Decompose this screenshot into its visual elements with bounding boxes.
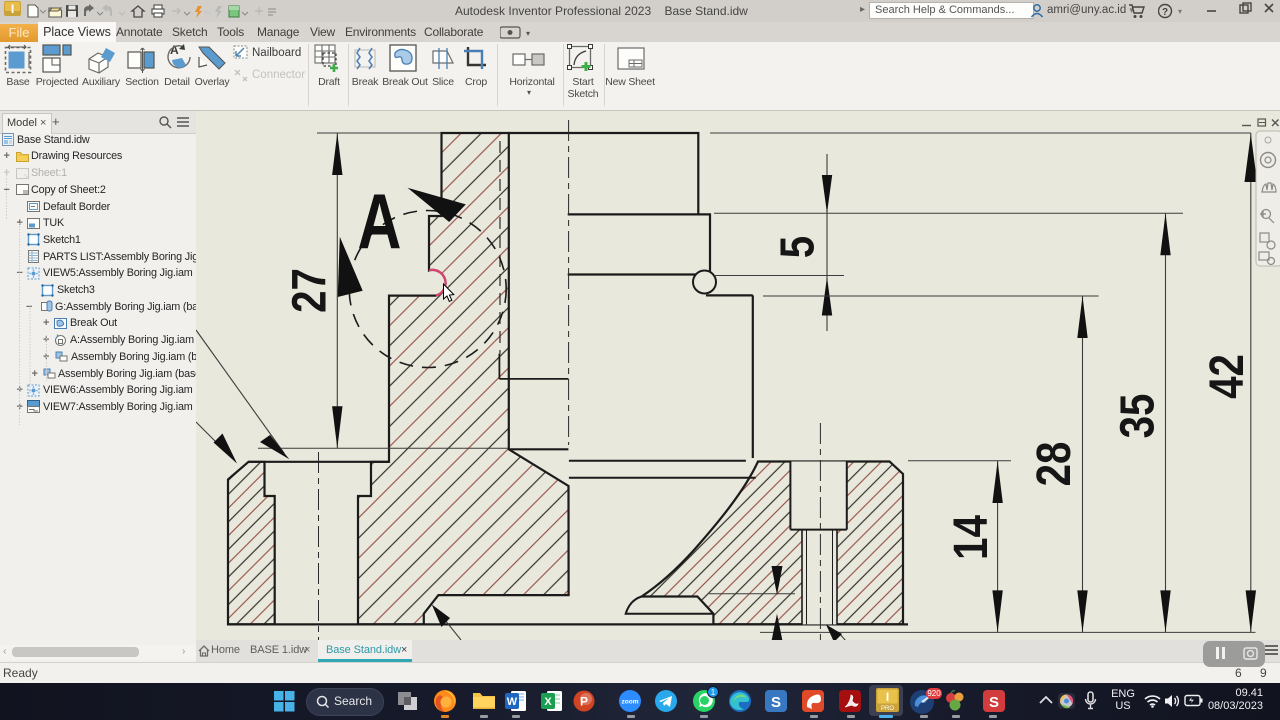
svg-text:S: S bbox=[989, 694, 999, 711]
svg-text:27: 27 bbox=[283, 268, 336, 313]
svg-text:A: A bbox=[170, 43, 179, 57]
svg-text:I: I bbox=[11, 2, 14, 16]
svg-text:▾: ▾ bbox=[526, 29, 530, 38]
svg-text:W: W bbox=[507, 696, 518, 708]
svg-text:S: S bbox=[771, 694, 781, 711]
svg-text:?: ? bbox=[1162, 7, 1168, 18]
svg-text:920: 920 bbox=[927, 689, 941, 698]
svg-text:A: A bbox=[358, 178, 402, 265]
svg-text:X: X bbox=[544, 696, 552, 708]
svg-text:P: P bbox=[580, 695, 588, 709]
svg-text:1: 1 bbox=[711, 688, 716, 697]
svg-text:PRO: PRO bbox=[881, 706, 894, 712]
svg-text:42: 42 bbox=[1201, 354, 1254, 399]
svg-text:28: 28 bbox=[1028, 442, 1081, 487]
svg-text:zoom: zoom bbox=[622, 699, 639, 706]
svg-text:35: 35 bbox=[1111, 394, 1164, 439]
svg-text:5: 5 bbox=[771, 236, 824, 258]
svg-text:14: 14 bbox=[945, 515, 998, 560]
svg-text:▾: ▾ bbox=[1178, 7, 1182, 16]
svg-text:I: I bbox=[886, 690, 889, 704]
